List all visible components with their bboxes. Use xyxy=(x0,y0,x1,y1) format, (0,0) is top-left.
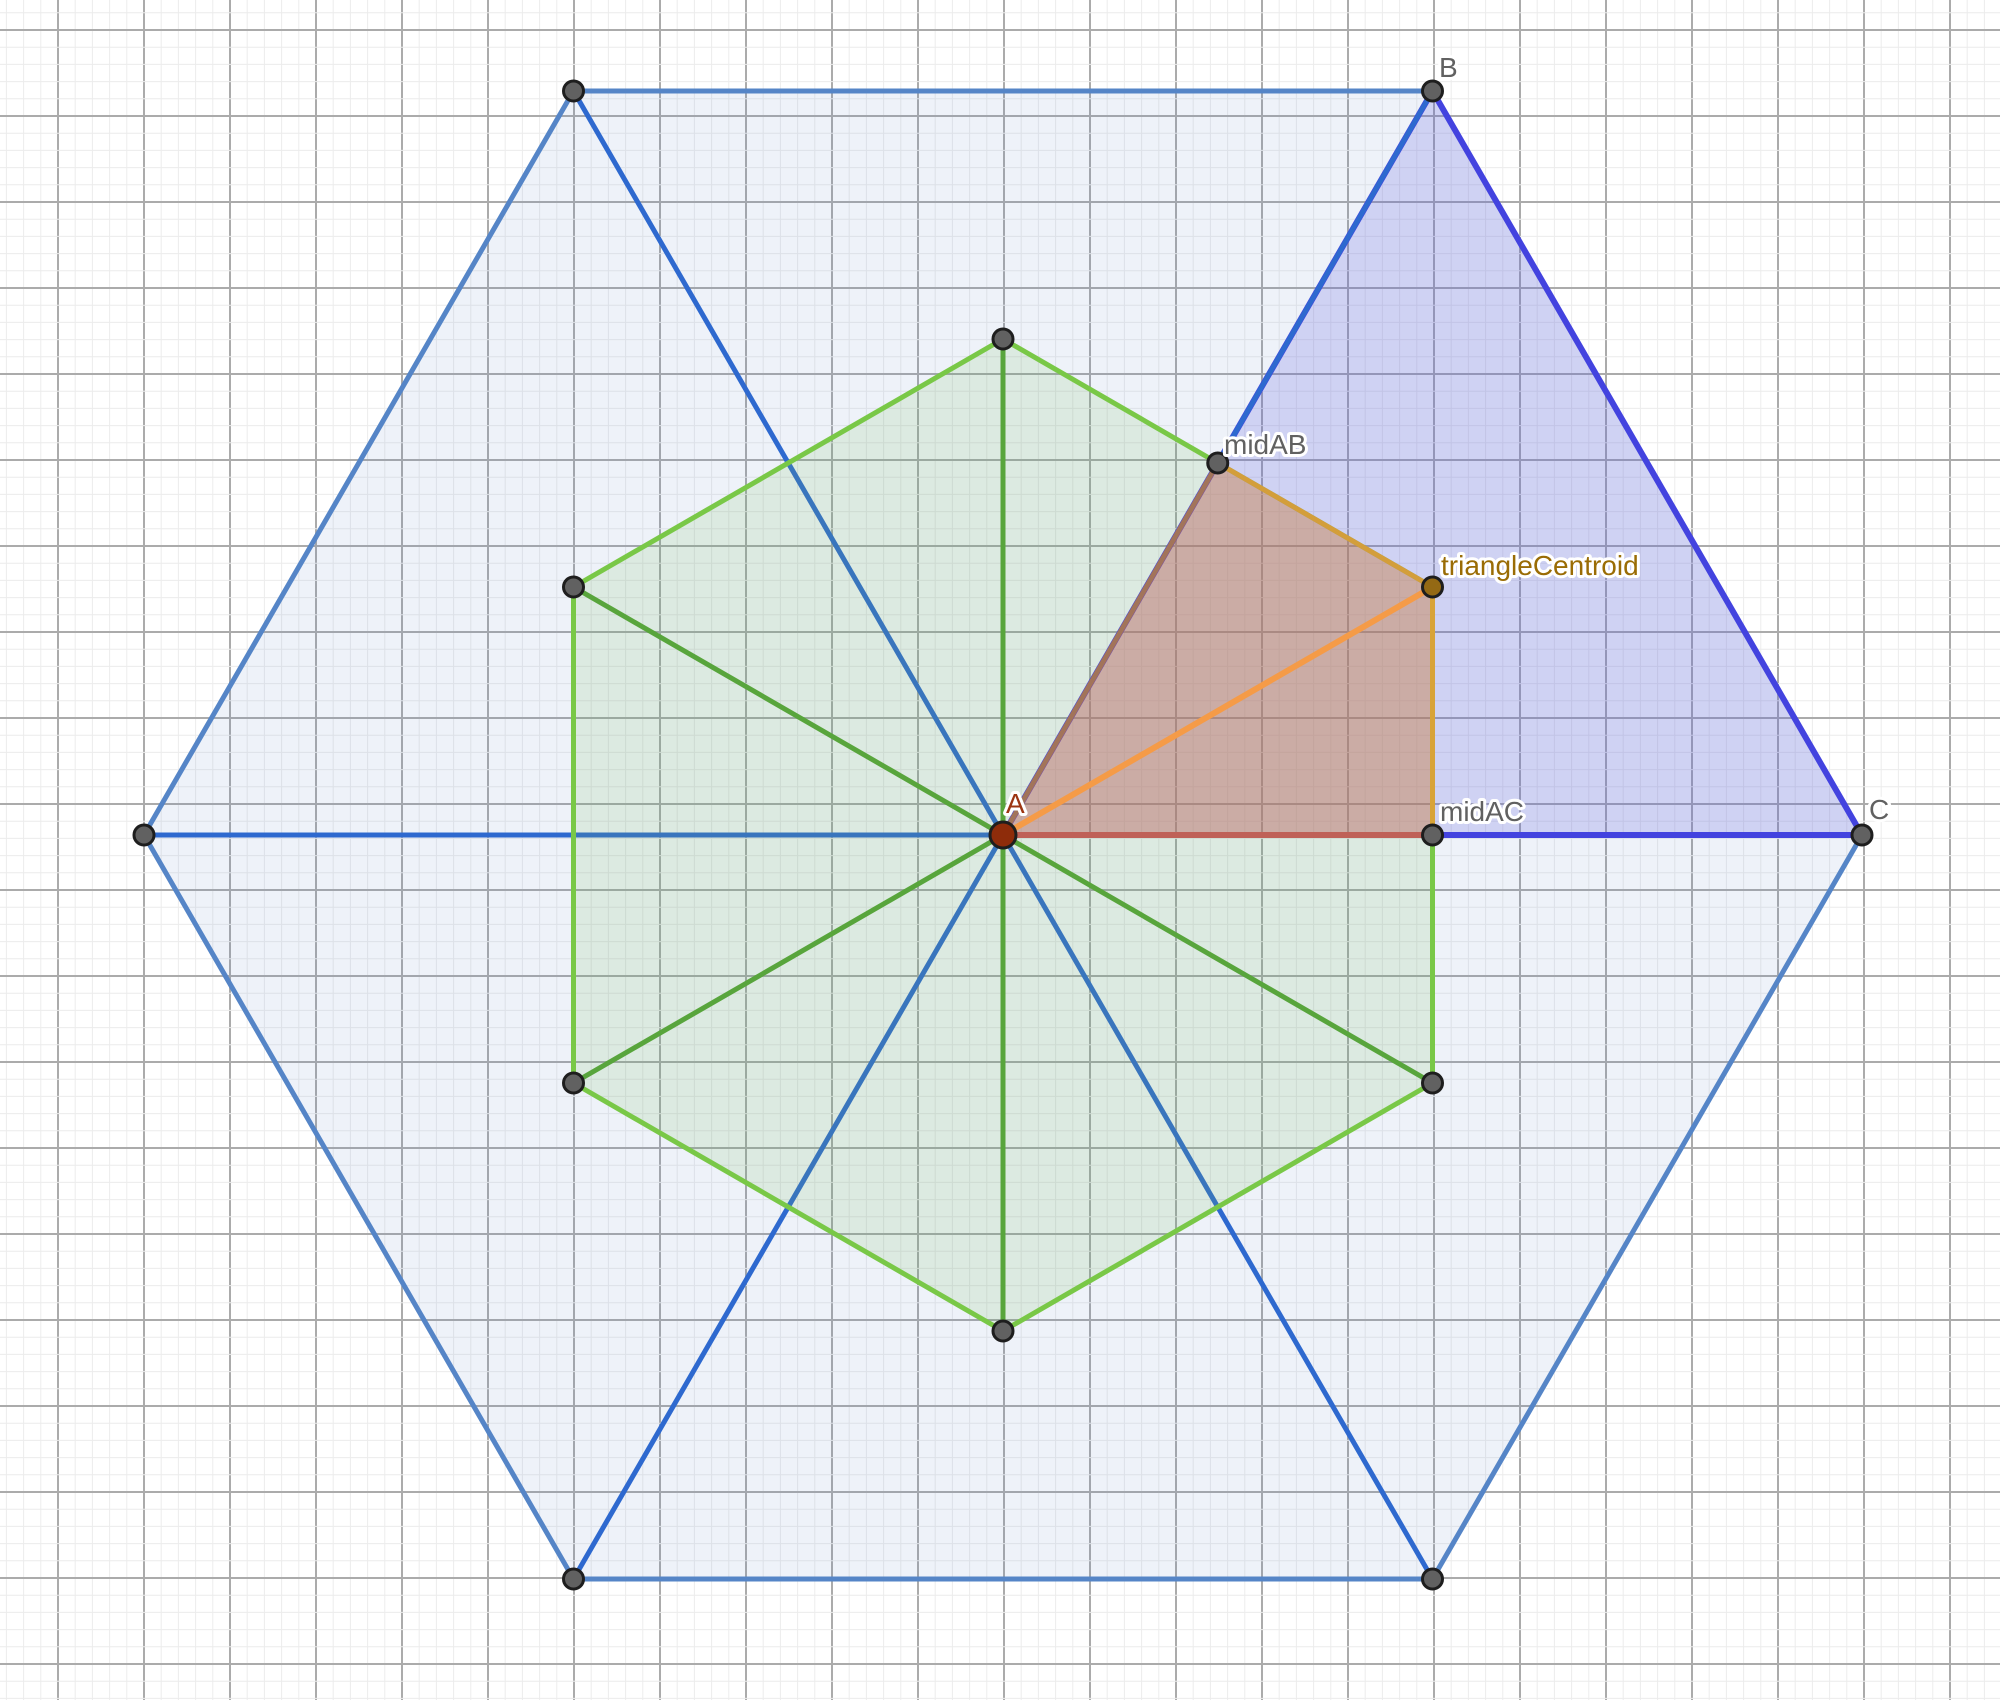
point-B[interactable] xyxy=(1423,81,1443,101)
label-A[interactable]: A xyxy=(1006,788,1025,819)
label-triangleCentroid[interactable]: triangleCentroid xyxy=(1441,550,1639,581)
point-triangleCentroid[interactable] xyxy=(1423,577,1443,597)
point-midAC[interactable] xyxy=(1423,825,1443,845)
label-B[interactable]: B xyxy=(1439,52,1458,83)
label-midAB[interactable]: midAB xyxy=(1224,429,1306,460)
point-hex-bottom-left[interactable] xyxy=(564,1569,584,1589)
point-green-upper-left[interactable] xyxy=(564,577,584,597)
point-C[interactable] xyxy=(1852,825,1872,845)
point-green-bottom[interactable] xyxy=(993,1321,1013,1341)
point-green-lower-right[interactable] xyxy=(1423,1073,1443,1093)
point-hex-left[interactable] xyxy=(134,825,154,845)
point-hex-bottom-right[interactable] xyxy=(1423,1569,1443,1589)
label-C[interactable]: C xyxy=(1869,794,1889,825)
graphics-view[interactable]: BCAmidABmidACtriangleCentroid xyxy=(0,0,2000,1700)
point-hex-top-left[interactable] xyxy=(564,81,584,101)
label-midAC[interactable]: midAC xyxy=(1440,796,1524,827)
geometry-canvas[interactable]: BCAmidABmidACtriangleCentroid xyxy=(0,0,2000,1700)
point-green-top[interactable] xyxy=(993,329,1013,349)
point-A[interactable] xyxy=(990,822,1016,848)
point-green-lower-left[interactable] xyxy=(564,1073,584,1093)
